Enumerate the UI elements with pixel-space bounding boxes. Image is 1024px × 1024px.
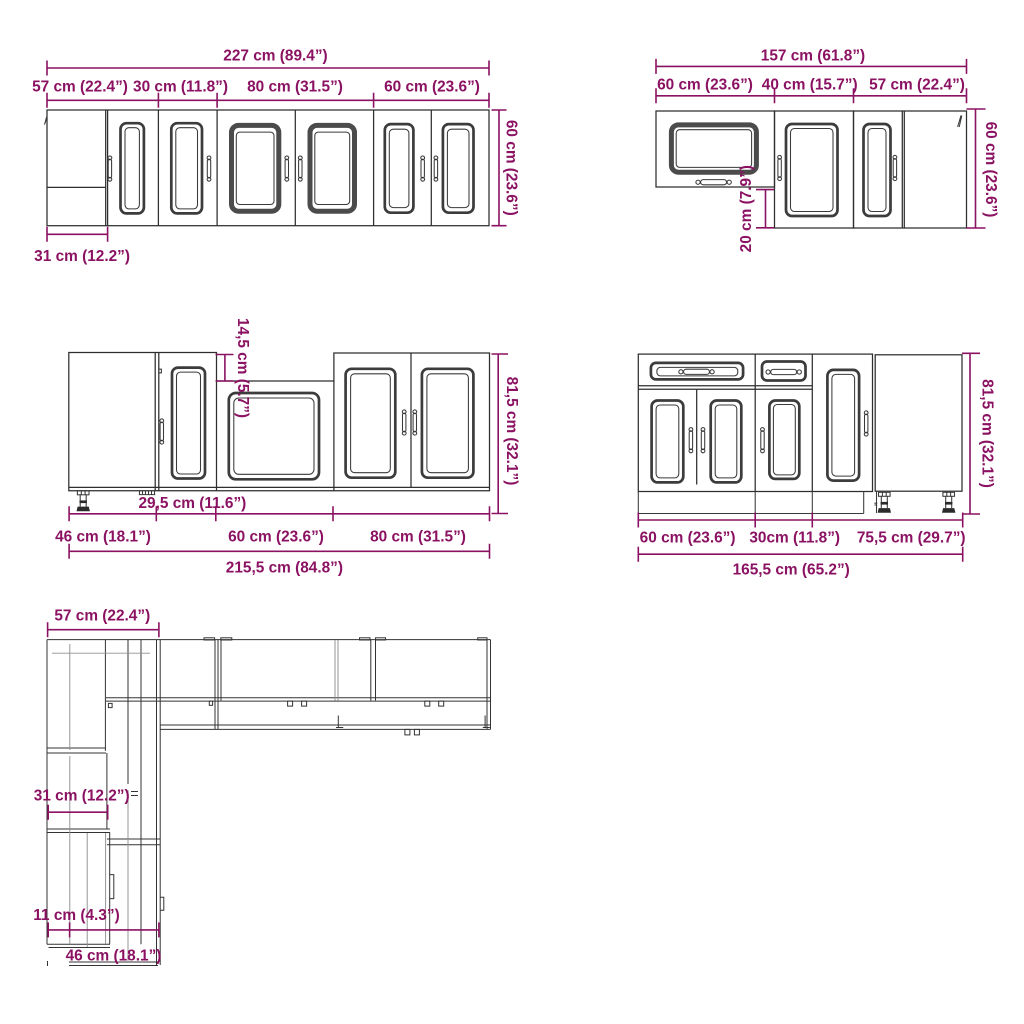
svg-text:20 cm (7.9”): 20 cm (7.9”) bbox=[738, 165, 755, 252]
svg-text:60 cm (23.6”): 60 cm (23.6”) bbox=[657, 77, 753, 94]
svg-text:46 cm (18.1”): 46 cm (18.1”) bbox=[55, 528, 151, 545]
svg-text:29,5 cm (11.6”): 29,5 cm (11.6”) bbox=[138, 495, 246, 512]
svg-text:31 cm (12.2”): 31 cm (12.2”) bbox=[34, 788, 130, 805]
svg-text:60 cm (23.6”): 60 cm (23.6”) bbox=[982, 122, 999, 218]
svg-text:14,5 cm (5.7”): 14,5 cm (5.7”) bbox=[234, 318, 251, 418]
svg-text:40 cm (15.7”): 40 cm (15.7”) bbox=[762, 77, 858, 94]
svg-text:75,5 cm (29.7”): 75,5 cm (29.7”) bbox=[857, 530, 966, 547]
svg-text:157 cm (61.8”): 157 cm (61.8”) bbox=[761, 47, 865, 64]
svg-text:165,5 cm (65.2”): 165,5 cm (65.2”) bbox=[733, 562, 850, 579]
svg-text:57 cm (22.4”): 57 cm (22.4”) bbox=[32, 78, 128, 95]
svg-text:60 cm (23.6”): 60 cm (23.6”) bbox=[228, 528, 324, 545]
svg-text:60 cm (23.6”): 60 cm (23.6”) bbox=[502, 120, 519, 216]
svg-text:80 cm (31.5”): 80 cm (31.5”) bbox=[247, 78, 343, 95]
svg-text:60 cm (23.6”): 60 cm (23.6”) bbox=[384, 78, 480, 95]
svg-text:57 cm (22.4”): 57 cm (22.4”) bbox=[54, 608, 150, 625]
svg-text:80 cm (31.5”): 80 cm (31.5”) bbox=[370, 528, 466, 545]
svg-text:60 cm (23.6”): 60 cm (23.6”) bbox=[640, 530, 736, 547]
svg-text:215,5 cm (84.8”): 215,5 cm (84.8”) bbox=[226, 560, 343, 577]
svg-text:81,5 cm (32.1”): 81,5 cm (32.1”) bbox=[978, 379, 995, 488]
svg-text:11 cm (4.3”): 11 cm (4.3”) bbox=[33, 907, 119, 924]
svg-text:227 cm (89.4”): 227 cm (89.4”) bbox=[223, 47, 327, 64]
svg-text:57 cm (22.4”): 57 cm (22.4”) bbox=[869, 77, 965, 94]
svg-text:30cm (11.8”): 30cm (11.8”) bbox=[749, 530, 840, 547]
svg-text:31 cm (12.2”): 31 cm (12.2”) bbox=[34, 248, 130, 265]
svg-text:81,5 cm (32.1”): 81,5 cm (32.1”) bbox=[503, 377, 520, 486]
svg-text:46 cm (18.1”): 46 cm (18.1”) bbox=[66, 947, 162, 964]
svg-text:30 cm (11.8”): 30 cm (11.8”) bbox=[133, 78, 228, 95]
